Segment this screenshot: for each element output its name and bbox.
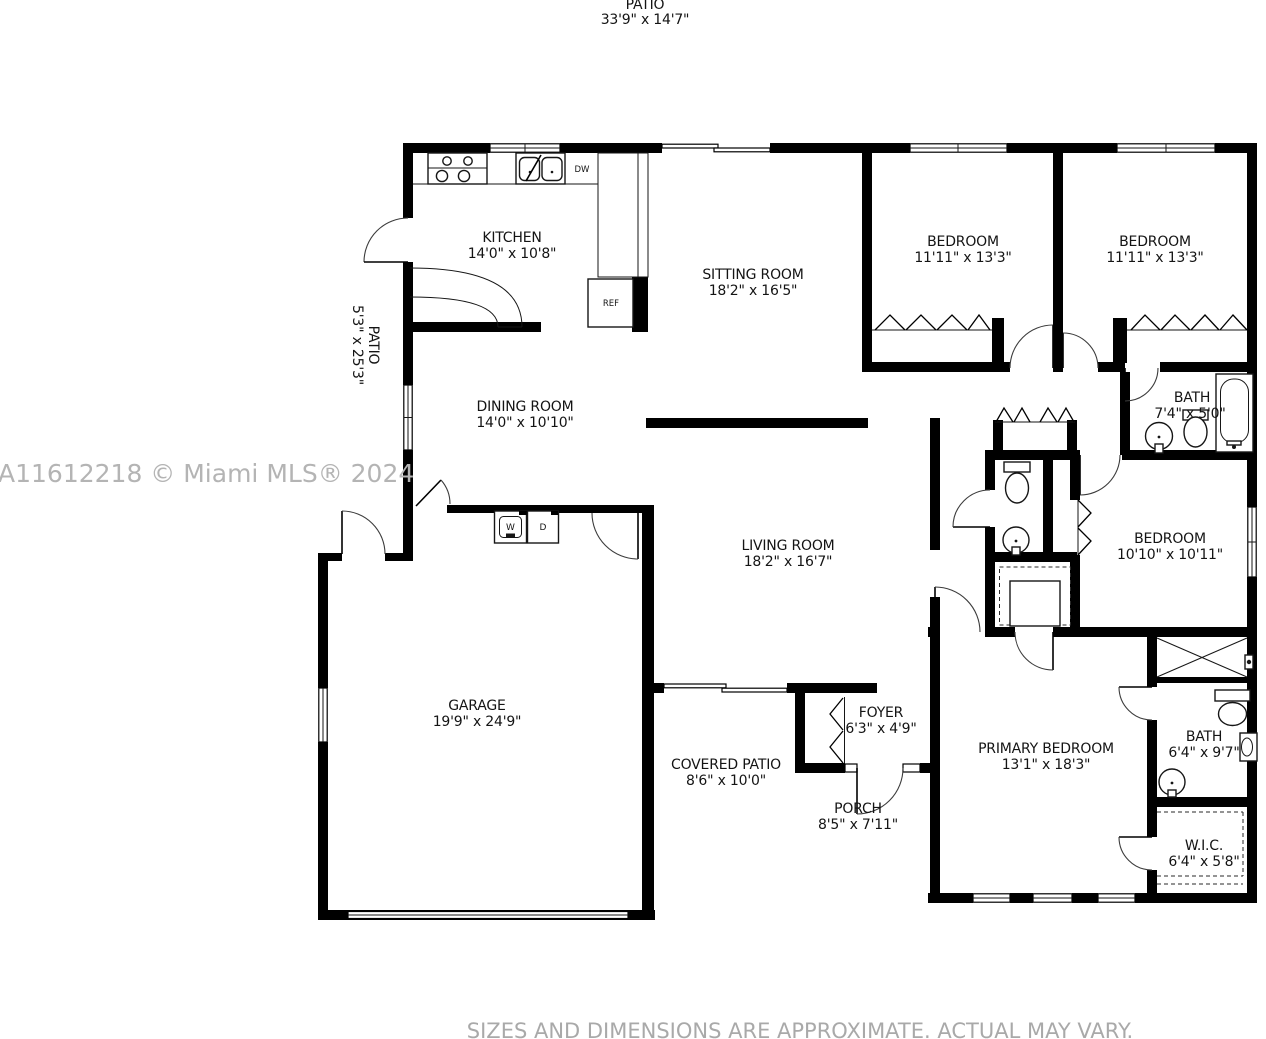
bedroom-right-label: BEDROOM: [1119, 234, 1191, 250]
kitchen-label: KITCHEN: [482, 230, 541, 246]
floor-plan-page: DW REF W D: [0, 0, 1266, 1039]
door-wic: [1119, 837, 1152, 870]
svg-text:W: W: [506, 523, 515, 533]
window-dining: [404, 385, 412, 450]
bedroom-left-label: BEDROOM: [927, 234, 999, 250]
door-primary-bath: [1119, 687, 1152, 720]
primary-bath-label: BATH: [1186, 729, 1222, 745]
hall-bath-dims: 7'4" x 5'0": [1154, 406, 1225, 422]
bifold-bedroom-right-closet-icon: [1127, 315, 1247, 330]
svg-text:REF: REF: [603, 299, 619, 309]
wic-label: W.I.C.: [1185, 838, 1223, 854]
door-bedroom-right: [1063, 333, 1098, 368]
window-bedroom-right: [1117, 144, 1215, 152]
wic-dims: 6'4" x 5'8": [1168, 854, 1239, 870]
primary-bedroom-dims: 13'1" x 18'3": [1002, 757, 1091, 773]
window-sitting-slider: [662, 144, 770, 152]
stove-icon: [428, 153, 487, 184]
door-utility-closet: [1015, 632, 1053, 670]
garage-door: [348, 912, 628, 919]
window-primary-3: [1098, 894, 1135, 902]
middle-bedroom-label: BEDROOM: [1134, 531, 1206, 547]
window-garage: [319, 688, 327, 742]
refrigerator-icon: REF: [588, 279, 633, 327]
room-labels: PATIO 33'9" x 14'7" PATIO 5'3" x 25'3" K…: [349, 0, 1240, 870]
living-room-dims: 18'2" x 16'7": [744, 554, 833, 570]
dryer-icon: D: [528, 511, 559, 543]
kitchen-sink-icon: [516, 153, 565, 184]
dining-room-dims: 14'0" x 10'10": [476, 415, 573, 431]
door-kitchen-patio: [364, 218, 408, 262]
hall-bath-sink-icon: [1146, 423, 1173, 454]
door-middle-bedroom: [1080, 455, 1120, 495]
hall-bath-label: BATH: [1174, 390, 1210, 406]
top-patio-dims: 33'9" x 14'7": [601, 12, 690, 28]
svg-text:PATIO: PATIO: [365, 326, 381, 365]
sitting-room-label: SITTING ROOM: [702, 267, 803, 283]
primary-bath-dims: 6'4" x 9'7": [1168, 745, 1239, 761]
dishwasher-label: DW: [575, 165, 591, 175]
shower-icon: [1157, 638, 1253, 677]
foyer-label: FOYER: [859, 705, 904, 721]
side-patio-label: PATIO 5'3" x 25'3": [349, 305, 381, 385]
middle-bedroom-dims: 10'10" x 10'11": [1117, 547, 1223, 563]
door-hall-primary: [935, 587, 980, 632]
bedroom-right-dims: 11'11" x 13'3": [1106, 250, 1203, 266]
porch-label: PORCH: [834, 801, 882, 817]
covered-patio-dims: 8'6" x 10'0": [686, 773, 766, 789]
window-primary-2: [1033, 894, 1072, 902]
door-living-garage: [592, 513, 638, 559]
dining-room-label: DINING ROOM: [477, 399, 574, 415]
primary-bedroom-label: PRIMARY BEDROOM: [978, 741, 1114, 757]
door-half-bath: [953, 490, 990, 527]
porch-dims: 8'5" x 7'11": [818, 817, 898, 833]
floor-plan: DW REF W D: [0, 0, 1266, 1039]
disclaimer-text: SIZES AND DIMENSIONS ARE APPROXIMATE. AC…: [467, 1019, 1133, 1039]
living-room-label: LIVING ROOM: [741, 538, 834, 554]
mls-watermark: A11612218 © Miami MLS® 2024: [0, 459, 414, 488]
door-garage-patio: [342, 511, 385, 554]
svg-text:5'3" x 25'3": 5'3" x 25'3": [349, 305, 365, 385]
half-bath-sink-icon: [1003, 527, 1029, 555]
bedroom-left-dims: 11'11" x 13'3": [914, 250, 1011, 266]
window-bedroom-left: [910, 144, 1007, 152]
half-bath-toilet-icon: [1004, 462, 1030, 503]
primary-toilet-icon: [1215, 690, 1250, 726]
bifold-hall-closet-icon: [995, 408, 1075, 422]
window-kitchen: [490, 144, 560, 152]
foyer-dims: 6'3" x 4'9": [845, 721, 916, 737]
bifold-middle-bedroom-closet-icon: [1078, 500, 1091, 555]
bifold-bedroom-left-closet-icon: [872, 315, 992, 330]
svg-text:D: D: [540, 523, 547, 533]
garage-label: GARAGE: [448, 698, 505, 714]
washer-icon: W: [495, 511, 528, 543]
bifold-foyer-closet-icon: [830, 697, 845, 763]
primary-pedestal-sink-icon: [1159, 769, 1185, 797]
covered-patio-label: COVERED PATIO: [671, 757, 781, 773]
primary-wall-sink-icon: [1240, 733, 1257, 761]
kitchen-dims: 14'0" x 10'8": [468, 246, 557, 262]
window-living-slider: [664, 684, 787, 692]
sitting-room-dims: 18'2" x 16'5": [709, 283, 798, 299]
door-dining-garage: [416, 480, 450, 506]
garage-dims: 19'9" x 24'9": [433, 714, 522, 730]
utility-water-heater-icon: [1000, 567, 1071, 626]
door-bedroom-left: [1010, 325, 1053, 368]
window-primary-1: [973, 894, 1010, 902]
window-middle-bedroom: [1248, 507, 1256, 577]
